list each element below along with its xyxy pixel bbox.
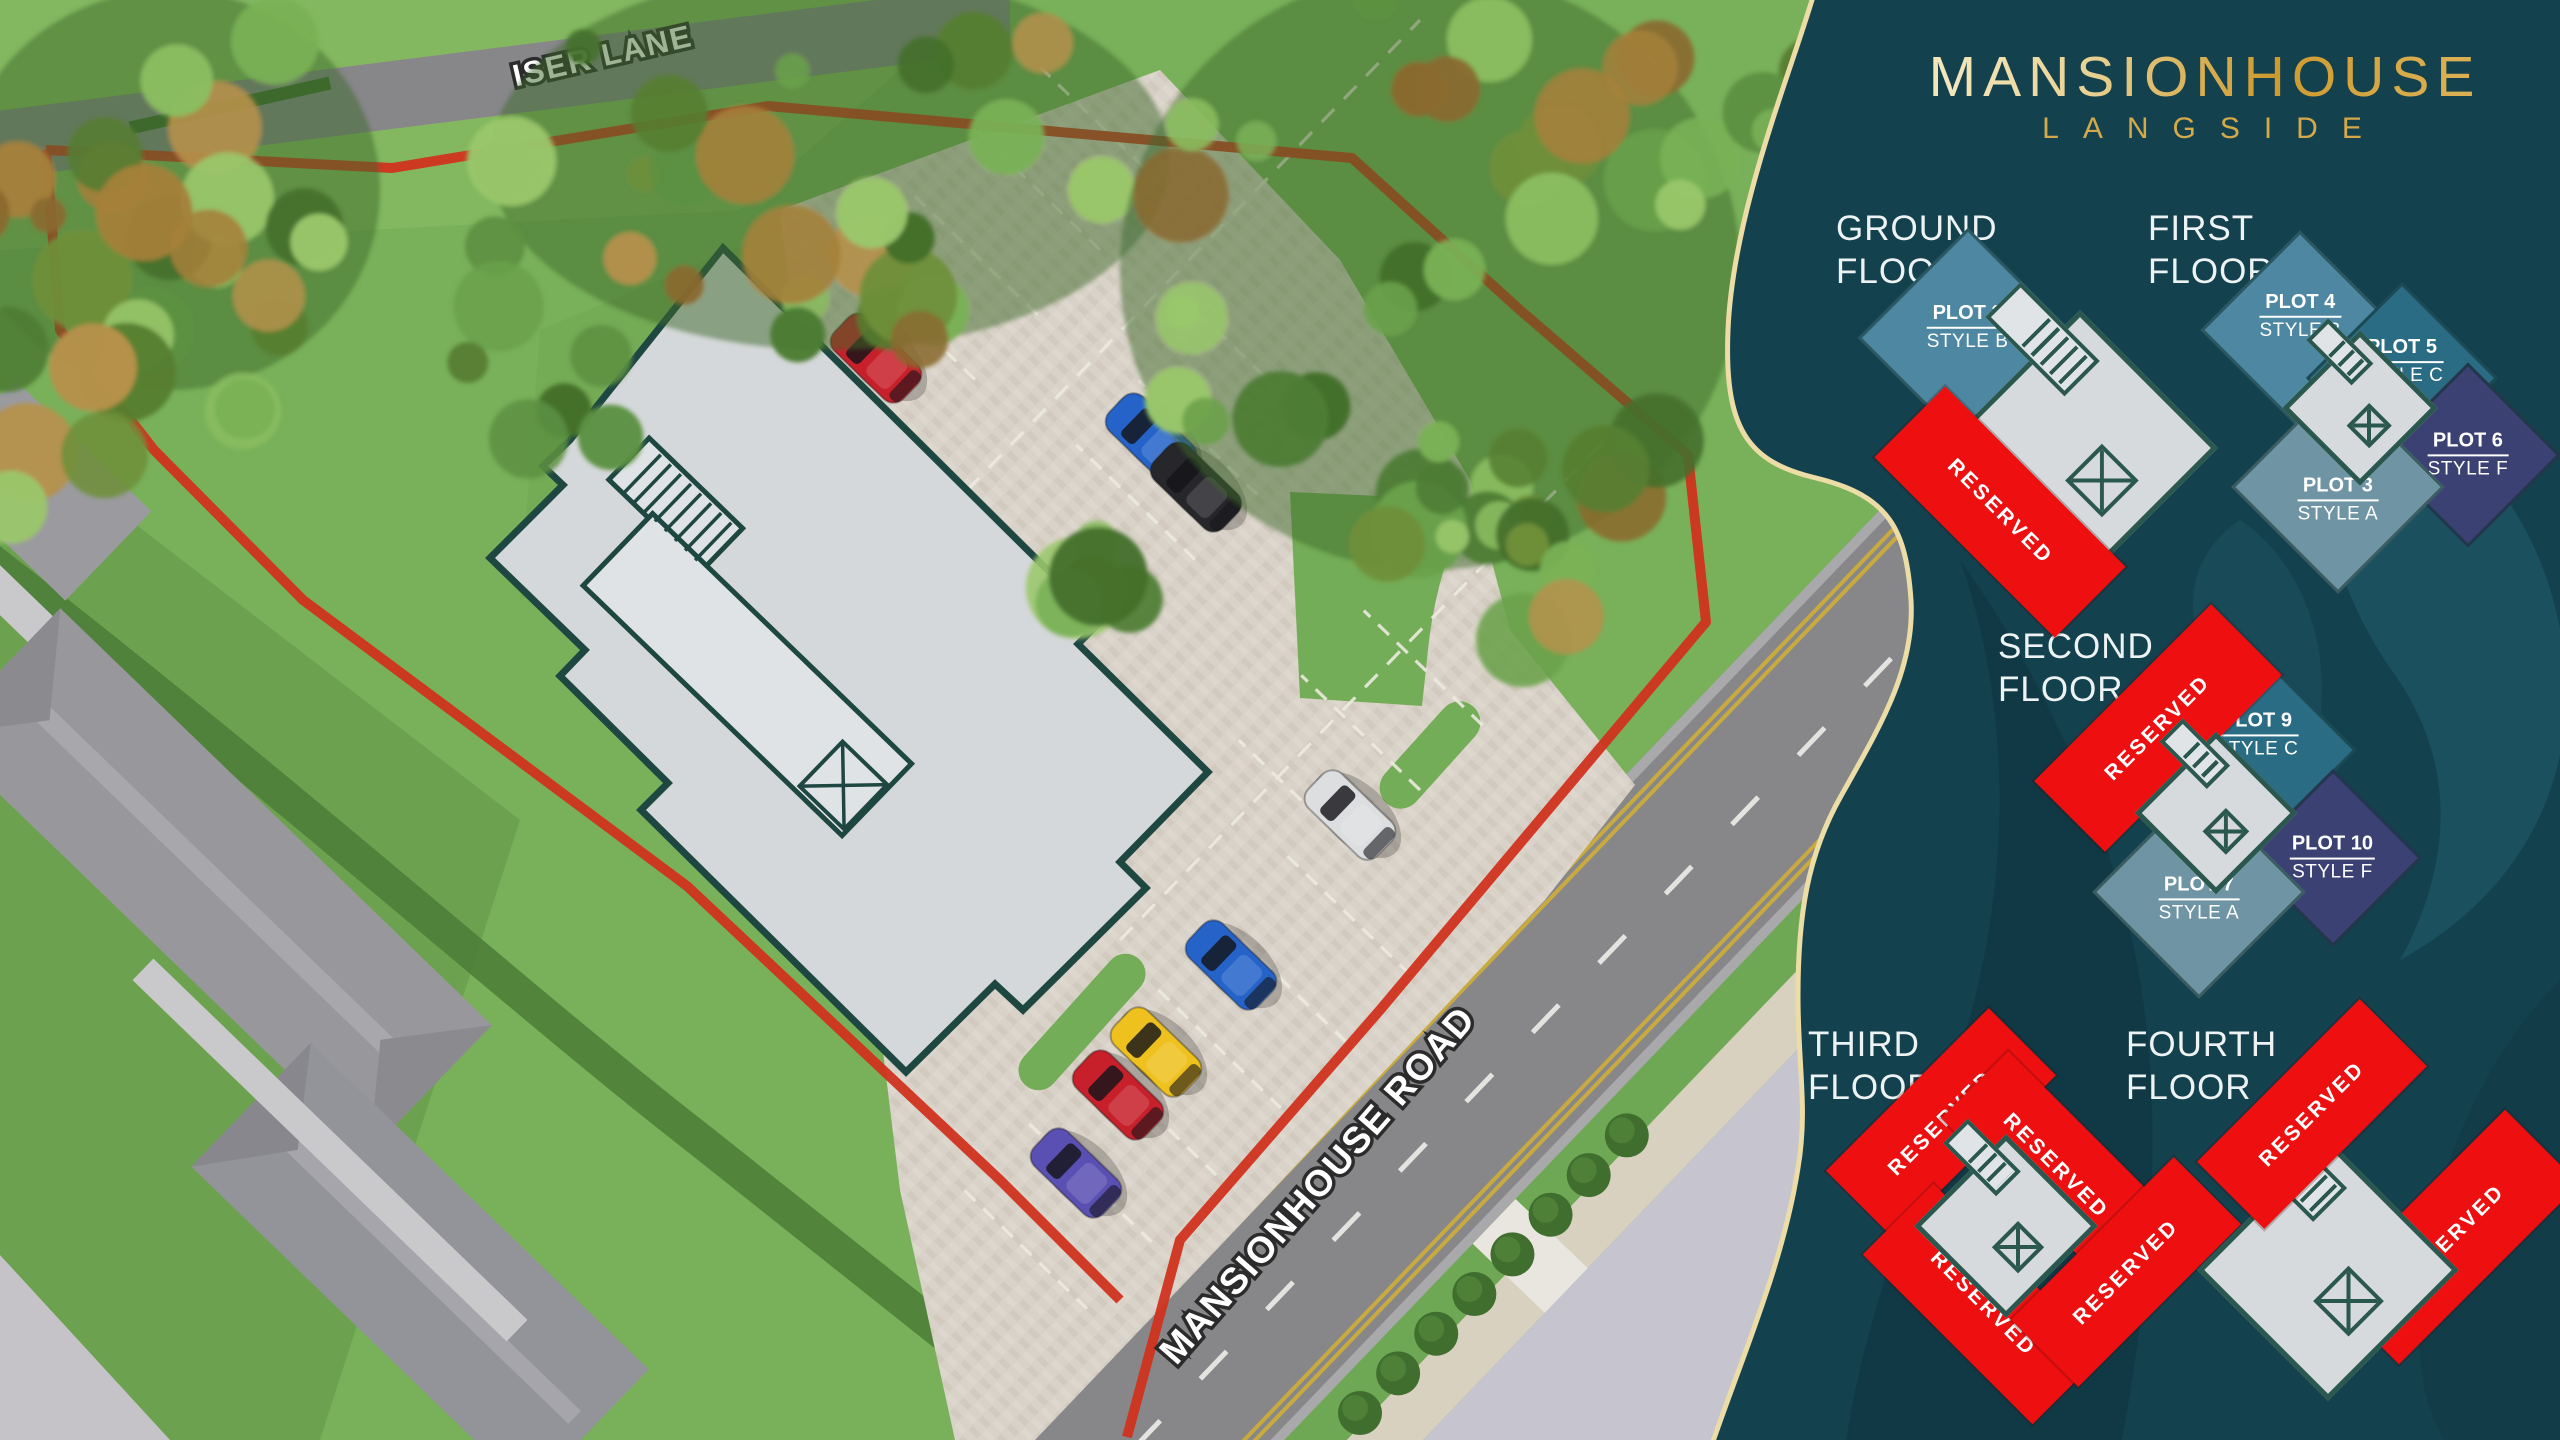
plot-6-label: PLOT 6 STYLE F (2428, 430, 2509, 481)
lift-icon (2202, 808, 2249, 855)
site-plan-page: ISER LANE (0, 0, 2560, 1440)
brand-logo: MANSIONHOUSE (1929, 44, 2482, 110)
lift-icon (2347, 403, 2392, 448)
brand-location: LANGSIDE (2018, 112, 2386, 146)
plot-10-label: PLOT 10 STYLE F (2290, 833, 2375, 884)
lift-icon (2313, 1266, 2384, 1337)
fourth-floor-heading: FOURTH FLOOR (2126, 1024, 2277, 1109)
lift-icon (2065, 444, 2139, 518)
lift-icon (1992, 1221, 2044, 1273)
